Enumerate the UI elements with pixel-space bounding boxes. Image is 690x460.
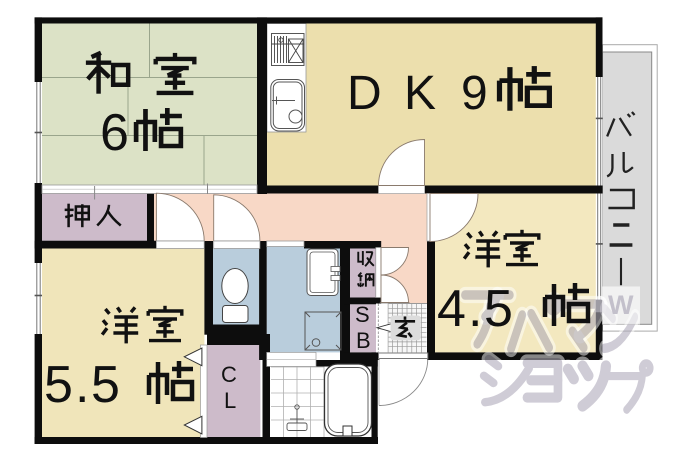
svg-text:W: W bbox=[608, 290, 634, 320]
svg-text:K: K bbox=[404, 67, 436, 120]
svg-text:L: L bbox=[224, 388, 236, 413]
svg-text:4: 4 bbox=[437, 280, 466, 338]
svg-text:D: D bbox=[347, 67, 382, 120]
svg-text:B: B bbox=[356, 328, 371, 353]
svg-text:.: . bbox=[468, 280, 482, 338]
svg-text:9: 9 bbox=[461, 67, 488, 120]
svg-text:5: 5 bbox=[91, 356, 120, 414]
svg-text:5: 5 bbox=[484, 280, 513, 338]
svg-text:C: C bbox=[221, 362, 237, 387]
svg-text:6: 6 bbox=[100, 104, 129, 162]
svg-text:S: S bbox=[355, 302, 370, 327]
svg-text:.: . bbox=[75, 356, 89, 414]
svg-text:5: 5 bbox=[44, 356, 73, 414]
